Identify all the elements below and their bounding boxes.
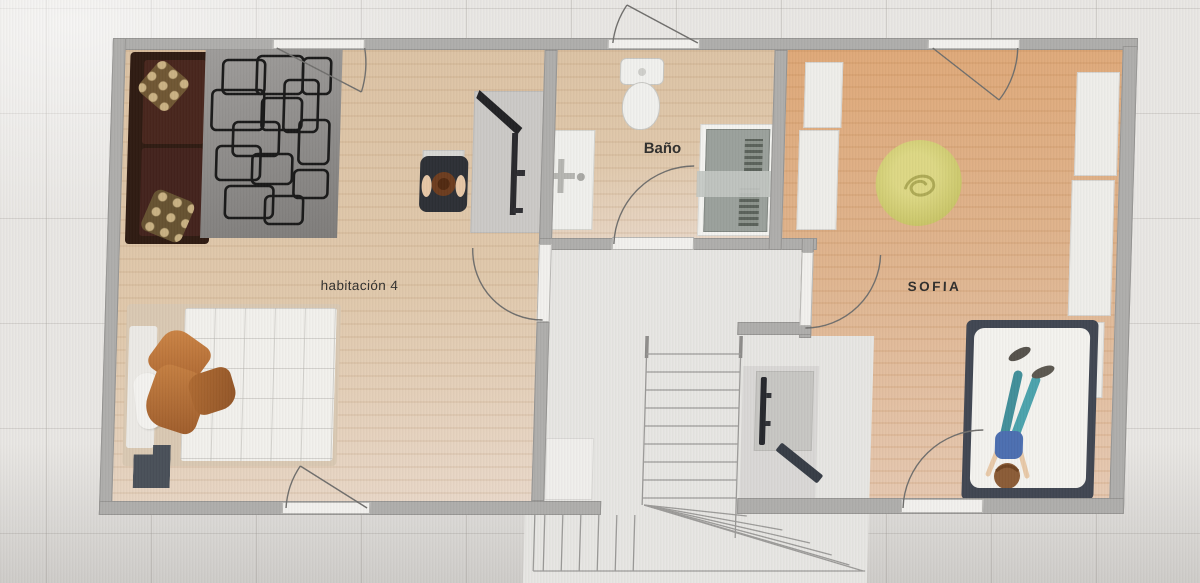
door-bottom-habitacion-opening[interactable] xyxy=(282,502,370,514)
wardrobe[interactable] xyxy=(1074,72,1120,176)
monitor[interactable] xyxy=(754,371,814,451)
rug-pattern xyxy=(200,50,343,238)
toilet-tank[interactable] xyxy=(620,58,665,85)
bed-mattress xyxy=(970,328,1091,488)
door-bottom-sofia-opening[interactable] xyxy=(901,499,983,513)
pouf-swirl xyxy=(874,140,963,226)
screen-photo: { "floor_plan": { "title": "second floor… xyxy=(0,0,1200,583)
floor-plan-canvas: habitación 4 Baño SOFIA xyxy=(97,38,1138,583)
yellow-pouf[interactable] xyxy=(874,140,963,226)
office-chair[interactable] xyxy=(419,156,469,212)
door-top-sofia-opening[interactable] xyxy=(928,39,1020,49)
wardrobe[interactable] xyxy=(803,62,843,128)
door-sofia-landing-opening[interactable] xyxy=(799,252,813,326)
room-label-bano: Baño xyxy=(643,140,681,157)
patterned-rug[interactable] xyxy=(200,50,343,238)
door-top-bano-opening[interactable] xyxy=(608,39,700,49)
washer-vent xyxy=(744,139,763,171)
person-sitting xyxy=(419,156,469,212)
washer-shelf-band xyxy=(696,171,777,197)
door-habitacion-landing-opening[interactable] xyxy=(537,244,552,322)
room-label-sofia: SOFIA xyxy=(907,279,961,294)
room-label-habitacion-4: habitación 4 xyxy=(320,278,398,293)
toilet-flush-button xyxy=(638,68,646,76)
wardrobe[interactable] xyxy=(1068,180,1115,316)
person-lying xyxy=(970,328,1091,488)
door-bano-landing-leaf[interactable] xyxy=(612,237,694,250)
toilet-bowl xyxy=(621,82,660,130)
door-top-habitacion-opening[interactable] xyxy=(273,39,365,49)
wardrobe[interactable] xyxy=(796,130,839,230)
